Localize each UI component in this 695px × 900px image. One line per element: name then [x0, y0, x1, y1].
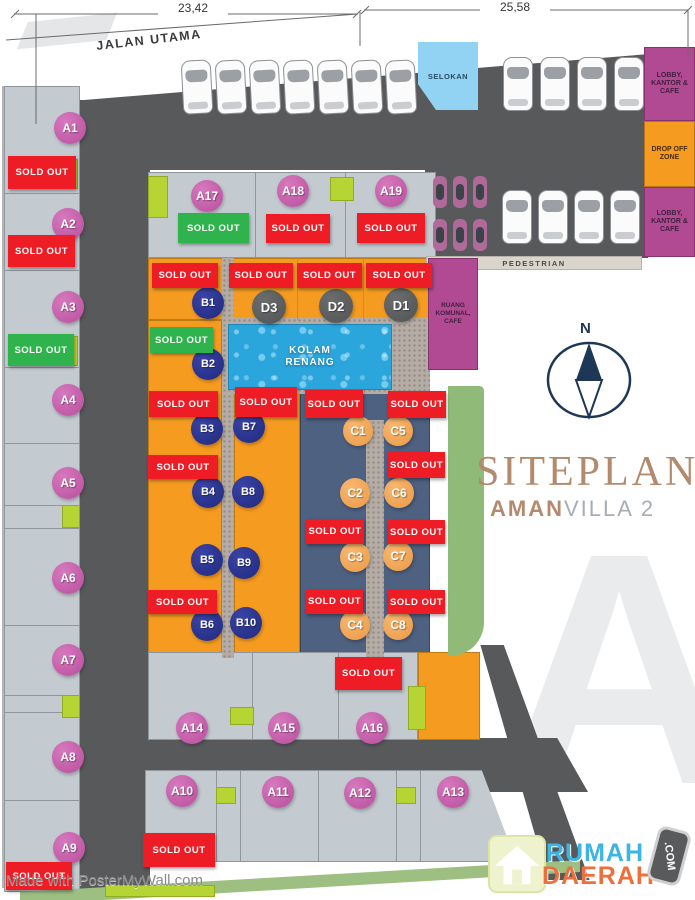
motorbike-icon: [433, 219, 447, 251]
car-icon: [574, 190, 604, 244]
lot-badge-C6: C6: [384, 478, 414, 508]
sold-out-marker: SOLD OUT: [388, 590, 445, 614]
lot-block-orange-corner: [418, 652, 480, 740]
communal-label-line2: KOMUNAL, CAFE: [431, 310, 475, 326]
green-landscape-strip-right: [448, 386, 484, 656]
lot-badge-A6: A6: [52, 562, 84, 594]
lime-accent: [230, 707, 254, 725]
car-icon: [503, 57, 533, 111]
motorbike-icon: [433, 176, 447, 208]
sold-out-marker: SOLD OUT: [8, 235, 75, 267]
lot-badge-A18: A18: [277, 175, 309, 207]
motorbike-icon: [453, 176, 467, 208]
lime-accent: [216, 787, 236, 804]
car-icon: [577, 57, 607, 111]
sold-out-marker: SOLD OUT: [366, 263, 432, 288]
lot-badge-B8: B8: [232, 476, 264, 508]
lime-accent: [396, 787, 416, 804]
compass-north-label: N: [580, 320, 591, 337]
sold-out-marker: SOLD OUT: [148, 590, 217, 614]
lot-badge-B10: B10: [230, 607, 262, 639]
sold-out-marker: SOLD OUT: [149, 391, 218, 417]
sold-out-marker: SOLD OUT: [306, 519, 364, 544]
lot-divider: [4, 367, 80, 368]
lime-accent: [62, 505, 80, 528]
lot-badge-A15: A15: [268, 712, 300, 744]
lot-divider: [4, 625, 80, 626]
project-name: AMANVILLA 2: [490, 496, 655, 522]
lot-badge-B5: B5: [191, 544, 223, 576]
sold-out-marker: SOLD OUT: [8, 334, 74, 366]
lot-badge-A17: A17: [191, 180, 223, 212]
car-icon: [540, 57, 570, 111]
lot-badge-A3: A3: [52, 291, 84, 323]
sold-out-marker: SOLD OUT: [335, 657, 402, 690]
lot-badge-B3: B3: [191, 413, 223, 445]
lot-badge-A14: A14: [176, 712, 208, 744]
lot-badge-A4: A4: [52, 384, 84, 416]
lot-badge-A9: A9: [53, 832, 85, 864]
lot-badge-A12: A12: [344, 777, 376, 809]
lot-badge-B4: B4: [192, 476, 224, 508]
sold-out-marker: SOLD OUT: [229, 263, 293, 288]
car-icon: [283, 59, 316, 114]
lime-accent: [408, 686, 426, 730]
motorbike-icon: [473, 219, 487, 251]
lot-badge-A10: A10: [166, 775, 198, 807]
communal-label-line1: RUANG: [441, 302, 465, 310]
lime-accent: [330, 177, 354, 201]
lot-divider: [4, 193, 80, 194]
lime-accent: [148, 176, 168, 218]
lobby-kantor-cafe-bottom: LOBBY, KANTOR & CAFE: [644, 187, 695, 257]
lot-badge-C3: C3: [340, 542, 370, 572]
drop-off-zone: DROP OFF ZONE: [644, 121, 695, 187]
lot-badge-D3: D3: [252, 290, 286, 324]
logo-com-text: .COM: [661, 841, 676, 871]
house-icon: [488, 834, 546, 894]
lime-accent: [62, 695, 80, 718]
sold-out-marker: SOLD OUT: [235, 387, 297, 417]
lot-divider: [363, 258, 364, 320]
lot-divider: [240, 770, 241, 862]
logo-word-daerah: DAERAH: [542, 862, 655, 891]
lot-badge-A1: A1: [54, 112, 86, 144]
sold-out-marker: SOLD OUT: [143, 833, 215, 867]
sold-out-marker: SOLD OUT: [357, 213, 425, 243]
lot-badge-D1: D1: [384, 288, 418, 322]
lot-badge-C8: C8: [383, 610, 413, 640]
lot-badge-A11: A11: [262, 776, 294, 808]
sold-out-marker: SOLD OUT: [388, 452, 445, 478]
car-icon: [538, 190, 568, 244]
project-name-light: VILLA 2: [564, 496, 655, 521]
rumah-daerah-logo: RUMAH DAERAH .COM: [484, 826, 695, 898]
sold-out-marker: SOLD OUT: [152, 263, 218, 288]
project-name-bold: AMAN: [490, 496, 564, 521]
lot-badge-C1: C1: [343, 416, 373, 446]
car-icon: [181, 59, 214, 114]
logo-com-badge: .COM: [645, 825, 692, 888]
lot-badge-A19: A19: [375, 175, 407, 207]
motorbike-icon: [453, 219, 467, 251]
swimming-pool: KOLAM RENANG: [228, 324, 392, 390]
lot-divider: [396, 770, 397, 862]
lot-badge-D2: D2: [319, 289, 353, 323]
compass-icon: [544, 340, 636, 422]
siteplan-poster: A KOLAM RENANG LOBBY, KANTOR & CAFE DROP…: [0, 0, 695, 900]
dimension-right-label: 25,58: [480, 0, 550, 14]
car-icon: [502, 190, 532, 244]
lot-badge-C4: C4: [340, 610, 370, 640]
lot-badge-A13: A13: [437, 776, 469, 808]
sold-out-marker: SOLD OUT: [150, 327, 213, 353]
sold-out-marker: SOLD OUT: [8, 156, 76, 189]
poster-credit-watermark: Made with PosterMyWall.com: [6, 872, 203, 889]
sold-out-marker: SOLD OUT: [388, 391, 446, 418]
dimension-left-label: 23,42: [158, 1, 228, 15]
car-icon: [351, 59, 384, 114]
sold-out-marker: SOLD OUT: [388, 520, 445, 544]
lot-divider: [255, 172, 256, 258]
lot-badge-A7: A7: [52, 644, 84, 676]
sold-out-marker: SOLD OUT: [148, 455, 218, 479]
lot-divider: [4, 528, 80, 529]
car-icon: [317, 59, 350, 114]
lot-badge-C5: C5: [383, 416, 413, 446]
sold-out-marker: SOLD OUT: [305, 390, 363, 418]
sold-out-marker: SOLD OUT: [297, 263, 362, 288]
lobby-kantor-cafe-top: LOBBY, KANTOR & CAFE: [644, 47, 695, 121]
car-icon: [215, 59, 248, 114]
lot-divider: [4, 443, 80, 444]
lot-badge-C7: C7: [383, 541, 413, 571]
car-icon: [610, 190, 640, 244]
sold-out-marker: SOLD OUT: [266, 214, 330, 243]
siteplan-title: SITEPLAN: [476, 448, 695, 496]
lot-badge-B1: B1: [192, 287, 224, 319]
car-icon: [249, 59, 282, 114]
pool-label-line1: KOLAM: [289, 345, 331, 357]
lot-badge-B9: B9: [228, 547, 260, 579]
lot-divider: [252, 652, 253, 740]
lot-divider: [4, 800, 80, 801]
road-left-vertical: [78, 100, 150, 892]
motorbike-icon: [473, 176, 487, 208]
sold-out-marker: SOLD OUT: [306, 589, 363, 614]
lot-divider: [318, 770, 319, 862]
lot-badge-A5: A5: [52, 467, 84, 499]
ruang-komunal-cafe: RUANG KOMUNAL, CAFE: [428, 258, 478, 370]
car-icon: [385, 59, 418, 114]
lot-divider: [216, 770, 217, 862]
lot-divider: [420, 770, 421, 862]
pool-label-line2: RENANG: [285, 357, 334, 369]
main-road-label: JALAN UTAMA: [96, 27, 203, 53]
lot-badge-C2: C2: [340, 478, 370, 508]
lot-badge-A16: A16: [356, 712, 388, 744]
lot-badge-A8: A8: [52, 741, 84, 773]
lot-divider: [4, 270, 80, 271]
car-icon: [614, 57, 644, 111]
sold-out-marker: SOLD OUT: [178, 213, 249, 243]
